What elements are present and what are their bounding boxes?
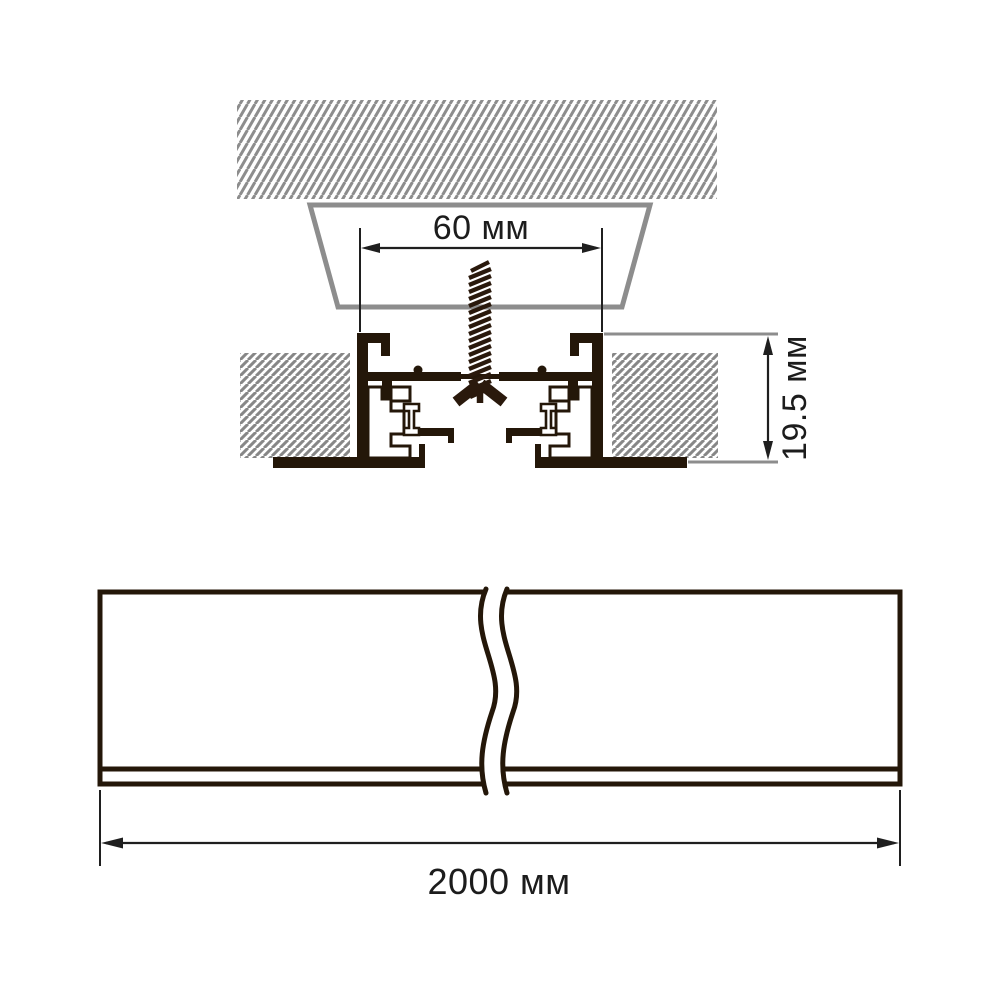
track-wall-left (357, 333, 368, 468)
track-top-flange-right (570, 333, 603, 343)
track-top-flange-left (357, 333, 390, 343)
side-view: 2000 мм (100, 588, 900, 902)
track-bottom-lip-right (535, 444, 541, 457)
track-web-bump-right (538, 366, 547, 375)
conductor-housing-left (368, 387, 410, 458)
track-web-left (366, 372, 461, 381)
ceiling-panel-left-hatch (240, 353, 350, 458)
track-wall-right (592, 333, 603, 468)
contact-prong-tip-left (448, 435, 454, 443)
height-arrowhead-bottom (763, 441, 773, 460)
length-arrowhead-right (877, 838, 899, 849)
contact-prong-left (418, 428, 454, 436)
ceiling-panel-right-hatch (612, 353, 718, 458)
track-web-right (499, 372, 594, 381)
technical-drawing-canvas: 60 мм 19.5 мм 2000 мм (0, 0, 1000, 1000)
contact-insert-left (404, 404, 419, 435)
track-web-bump-left (414, 366, 423, 375)
profile-length-label: 2000 мм (427, 861, 570, 902)
track-top-lip-left (381, 343, 390, 356)
conductor-housing-right (550, 387, 592, 458)
track-bottom-lip-left (419, 444, 425, 457)
recess-width-label: 60 мм (433, 209, 530, 247)
length-arrowhead-left (101, 838, 123, 849)
cross-section-view: 60 мм 19.5 мм (237, 100, 814, 468)
contact-insert-right (541, 404, 556, 435)
height-arrowhead-top (763, 336, 773, 355)
ceiling-slab-hatch (237, 100, 717, 199)
contact-prong-right (506, 428, 542, 436)
dimension-profile-height: 19.5 мм (763, 335, 814, 461)
track-profile-drawing: 60 мм 19.5 мм 2000 мм (0, 0, 1000, 1000)
profile-height-label: 19.5 мм (776, 335, 814, 461)
screw-head (456, 384, 504, 403)
contact-prong-tip-right (506, 435, 512, 443)
dimension-profile-length: 2000 мм (100, 790, 900, 902)
track-top-lip-right (570, 343, 579, 356)
